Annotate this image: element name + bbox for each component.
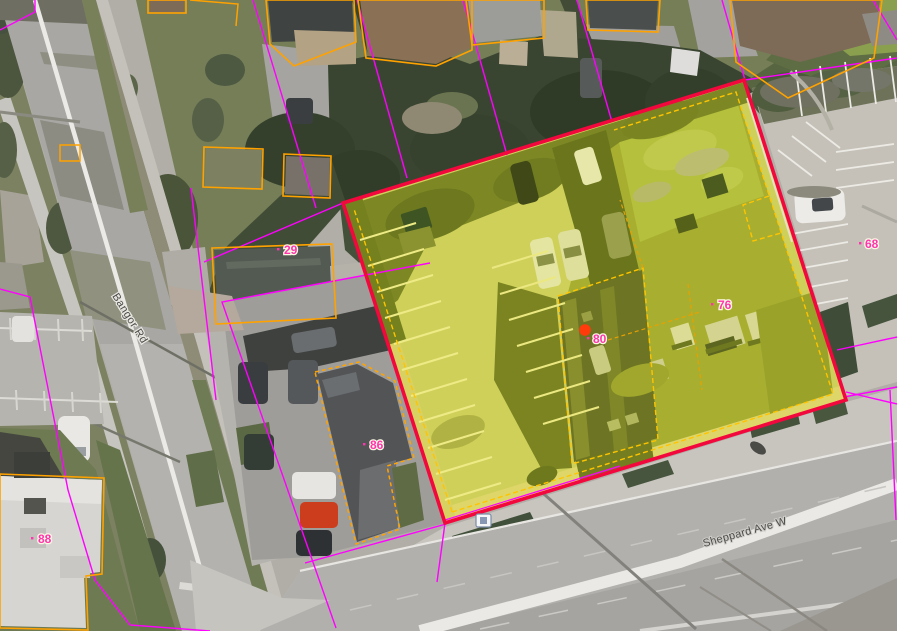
svg-text:29: 29 <box>284 243 298 257</box>
svg-text:86: 86 <box>370 438 384 452</box>
svg-text:80: 80 <box>593 332 607 346</box>
svg-text:68: 68 <box>865 237 879 251</box>
svg-text:76: 76 <box>718 298 732 312</box>
svg-text:88: 88 <box>38 532 52 546</box>
